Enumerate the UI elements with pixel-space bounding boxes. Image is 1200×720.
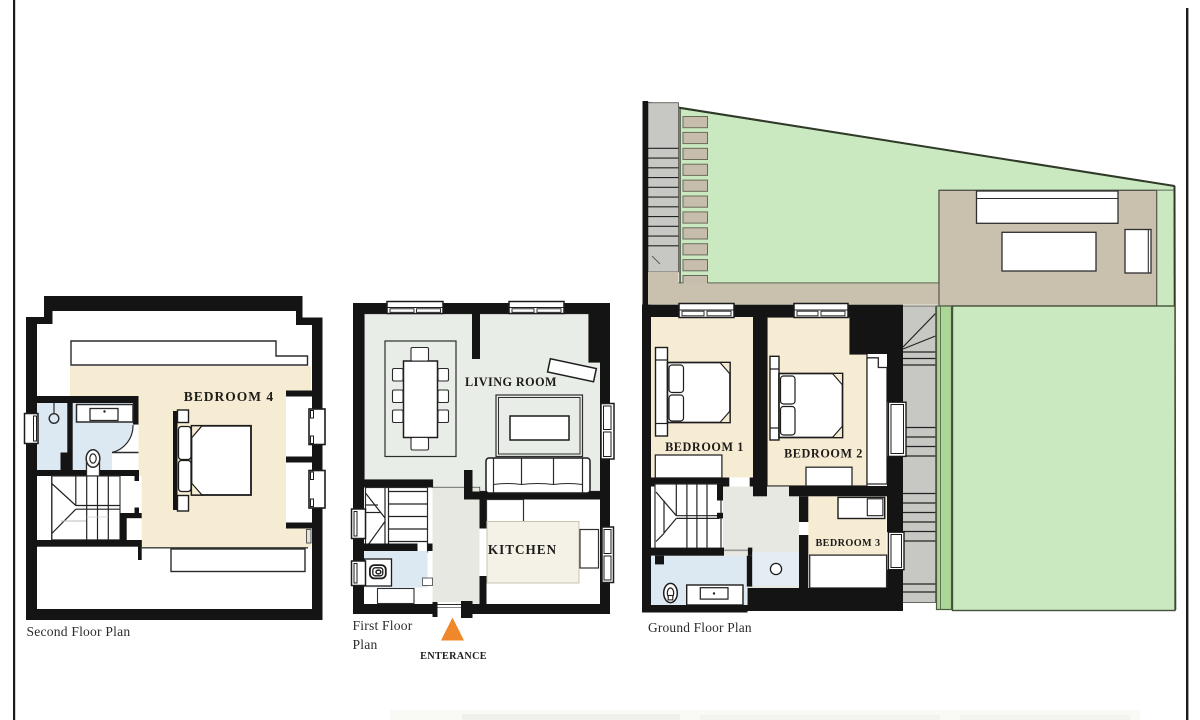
svg-text:BEDROOM 4: BEDROOM 4 [184,389,274,404]
svg-text:Ground Floor Plan: Ground Floor Plan [648,620,752,635]
svg-text:LIVING ROOM: LIVING ROOM [465,375,557,389]
svg-text:BEDROOM 2: BEDROOM 2 [784,447,863,461]
svg-text:BEDROOM 1: BEDROOM 1 [665,440,744,454]
svg-text:ENTERANCE: ENTERANCE [420,651,487,662]
svg-text:Second Floor Plan: Second Floor Plan [27,624,131,639]
svg-text:BEDROOM 3: BEDROOM 3 [815,538,880,549]
svg-text:First Floor: First Floor [353,618,413,633]
svg-text:Plan: Plan [353,637,378,652]
svg-text:KITCHEN: KITCHEN [488,542,557,557]
